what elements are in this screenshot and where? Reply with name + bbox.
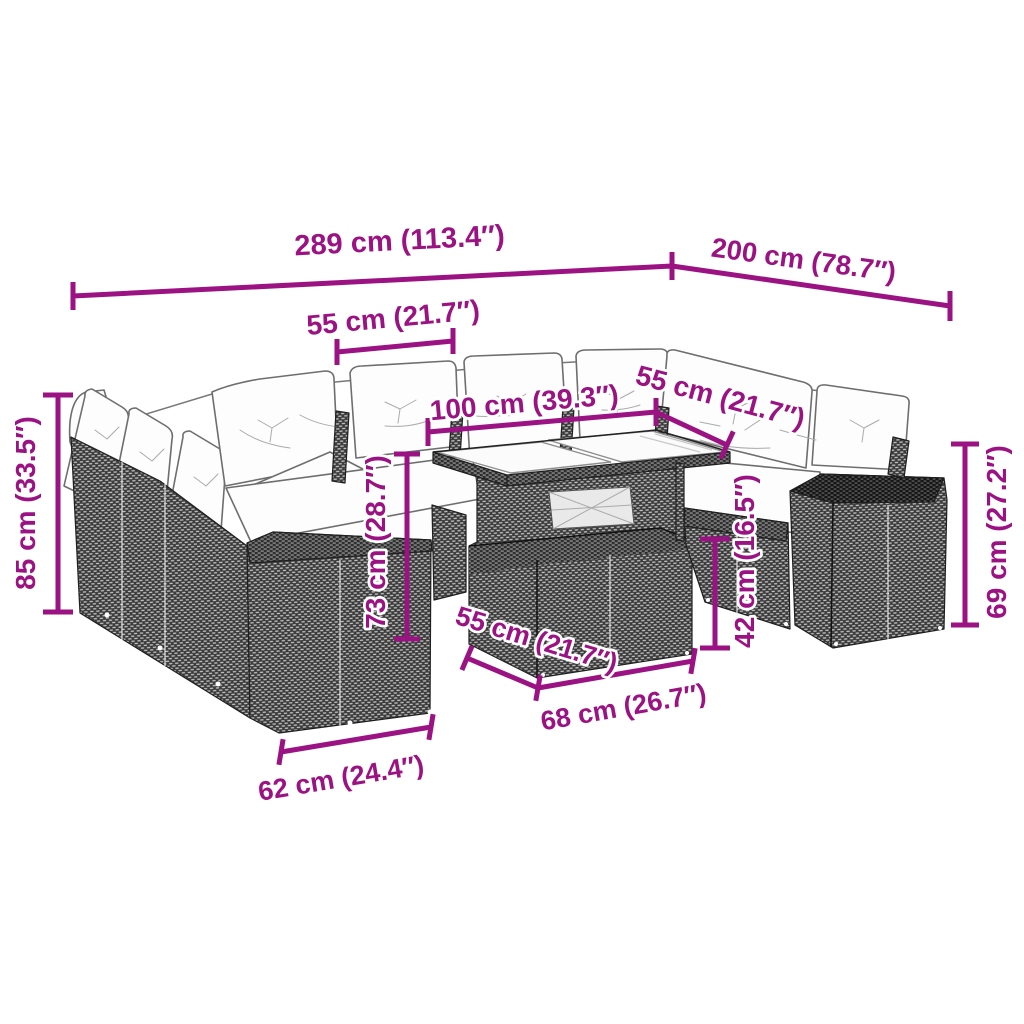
svg-text:69 cm (27.2″): 69 cm (27.2″) (981, 445, 1012, 619)
svg-text:85 cm (33.5″): 85 cm (33.5″) (10, 416, 41, 590)
svg-text:73 cm (28.7″): 73 cm (28.7″) (360, 455, 391, 629)
svg-text:42 cm (16.5″): 42 cm (16.5″) (729, 474, 760, 648)
